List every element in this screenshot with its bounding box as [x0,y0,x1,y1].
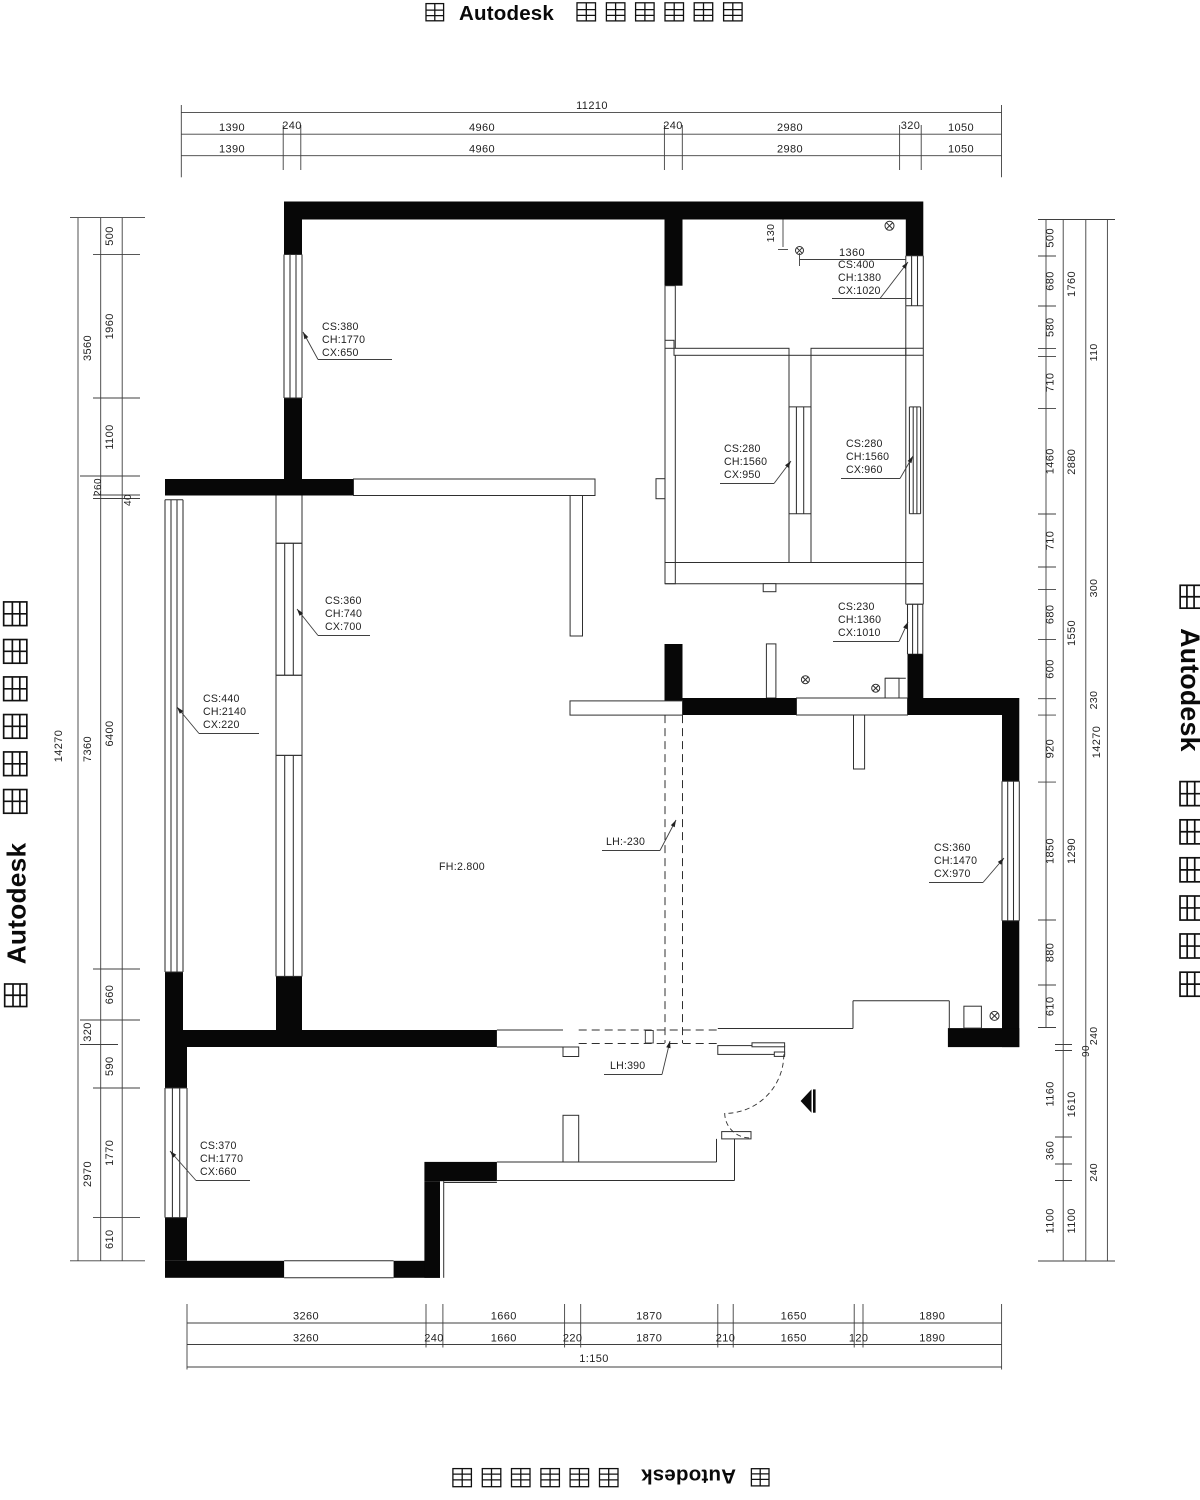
svg-text:CS:280: CS:280 [724,443,761,455]
svg-text:1610: 1610 [1066,1091,1078,1117]
svg-text:CH:1770: CH:1770 [322,334,365,346]
svg-text:4960: 4960 [469,144,495,156]
svg-text:230: 230 [1088,691,1100,710]
svg-text:CX:1020: CX:1020 [838,285,881,297]
svg-text:320: 320 [82,1022,94,1042]
svg-text:1650: 1650 [781,1311,807,1323]
svg-text:Autodesk: Autodesk [1175,628,1200,751]
svg-text:220: 220 [563,1333,583,1345]
svg-text:2980: 2980 [777,122,803,134]
svg-text:6400: 6400 [104,720,116,746]
svg-text:1160: 1160 [1045,1081,1057,1106]
svg-text:2970: 2970 [82,1161,94,1187]
svg-text:CH:1380: CH:1380 [838,272,881,284]
svg-text:1550: 1550 [1066,620,1078,646]
svg-text:320: 320 [901,120,921,132]
svg-text:1290: 1290 [1066,838,1078,864]
svg-text:710: 710 [1045,373,1057,393]
svg-text:3260: 3260 [293,1311,319,1323]
svg-text:1390: 1390 [219,122,245,134]
svg-text:1890: 1890 [919,1311,945,1323]
svg-text:40: 40 [123,494,134,506]
svg-text:CS:360: CS:360 [325,595,362,607]
svg-text:110: 110 [1088,343,1100,361]
svg-text:2880: 2880 [1066,449,1078,475]
svg-text:1100: 1100 [1066,1208,1078,1233]
svg-text:14270: 14270 [1091,726,1103,759]
svg-text:14270: 14270 [53,730,65,763]
svg-text:610: 610 [104,1229,116,1249]
svg-text:2980: 2980 [777,144,803,156]
svg-text:600: 600 [1045,659,1057,679]
svg-text:CX:220: CX:220 [203,719,240,731]
svg-text:LH:-230: LH:-230 [606,836,645,848]
svg-text:1050: 1050 [948,122,974,134]
svg-text:1:150: 1:150 [579,1353,609,1365]
svg-text:1660: 1660 [491,1311,517,1323]
svg-text:920: 920 [1045,739,1057,759]
svg-text:CX:660: CX:660 [200,1166,237,1178]
svg-text:CX:950: CX:950 [724,469,761,481]
svg-text:500: 500 [104,226,116,246]
svg-text:1850: 1850 [1045,838,1057,864]
svg-text:1360: 1360 [839,247,865,259]
svg-text:210: 210 [716,1333,736,1345]
svg-text:660: 660 [104,985,116,1005]
svg-text:3560: 3560 [82,335,94,361]
svg-text:CX:1010: CX:1010 [838,627,881,639]
svg-text:FH:2.800: FH:2.800 [439,861,485,873]
svg-text:1870: 1870 [636,1311,662,1323]
svg-text:CX:650: CX:650 [322,347,359,359]
svg-text:1660: 1660 [491,1333,517,1345]
svg-text:880: 880 [1045,943,1057,963]
svg-text:1890: 1890 [919,1333,945,1345]
svg-text:CS:230: CS:230 [838,601,875,613]
svg-text:610: 610 [1045,997,1057,1017]
svg-text:CH:1360: CH:1360 [838,614,881,626]
svg-text:710: 710 [1045,531,1057,551]
svg-text:CS:370: CS:370 [200,1140,237,1152]
svg-text:CX:960: CX:960 [846,464,883,476]
svg-text:CS:440: CS:440 [203,693,240,705]
svg-text:1960: 1960 [104,313,116,339]
svg-text:590: 590 [104,1056,116,1076]
svg-text:CH:1770: CH:1770 [200,1153,243,1165]
svg-text:LH:390: LH:390 [610,1060,645,1072]
svg-text:300: 300 [1088,579,1100,598]
svg-text:CS:400: CS:400 [838,259,875,271]
svg-text:3260: 3260 [293,1333,319,1345]
svg-text:CS:280: CS:280 [846,438,883,450]
svg-text:680: 680 [1045,605,1057,625]
svg-text:500: 500 [1045,228,1057,248]
svg-text:1100: 1100 [1045,1208,1057,1233]
svg-text:240: 240 [282,120,302,132]
svg-text:360: 360 [1045,1141,1057,1161]
svg-text:4960: 4960 [469,122,495,134]
svg-text:1100: 1100 [104,424,116,449]
svg-text:240: 240 [1088,1026,1100,1045]
svg-text:Autodesk: Autodesk [2,843,32,965]
svg-text:1760: 1760 [1066,271,1078,297]
svg-text:1770: 1770 [104,1140,116,1166]
svg-text:Autodesk: Autodesk [459,2,554,25]
svg-text:1650: 1650 [781,1333,807,1345]
svg-text:260: 260 [93,478,104,496]
svg-text:240: 240 [424,1333,444,1345]
svg-text:CH:1470: CH:1470 [934,855,977,867]
svg-text:1050: 1050 [948,144,974,156]
svg-text:11210: 11210 [576,100,608,112]
svg-text:680: 680 [1045,271,1057,291]
svg-text:1460: 1460 [1045,448,1057,474]
svg-text:CH:1560: CH:1560 [846,451,889,463]
svg-text:1870: 1870 [636,1333,662,1345]
svg-text:Autodesk: Autodesk [641,1465,736,1488]
svg-text:CS:380: CS:380 [322,321,359,333]
svg-text:90: 90 [1081,1045,1092,1057]
svg-text:120: 120 [849,1333,869,1345]
svg-text:CX:970: CX:970 [934,868,971,880]
svg-text:CH:2140: CH:2140 [203,706,246,718]
svg-text:1390: 1390 [219,144,245,156]
svg-text:CH:1560: CH:1560 [724,456,767,468]
svg-text:580: 580 [1045,317,1057,337]
svg-text:7360: 7360 [82,736,94,762]
svg-text:240: 240 [1088,1163,1100,1182]
svg-text:CS:360: CS:360 [934,842,971,854]
svg-text:240: 240 [663,120,683,132]
svg-text:CH:740: CH:740 [325,608,362,620]
svg-text:CX:700: CX:700 [325,621,362,633]
svg-text:130: 130 [765,224,777,243]
